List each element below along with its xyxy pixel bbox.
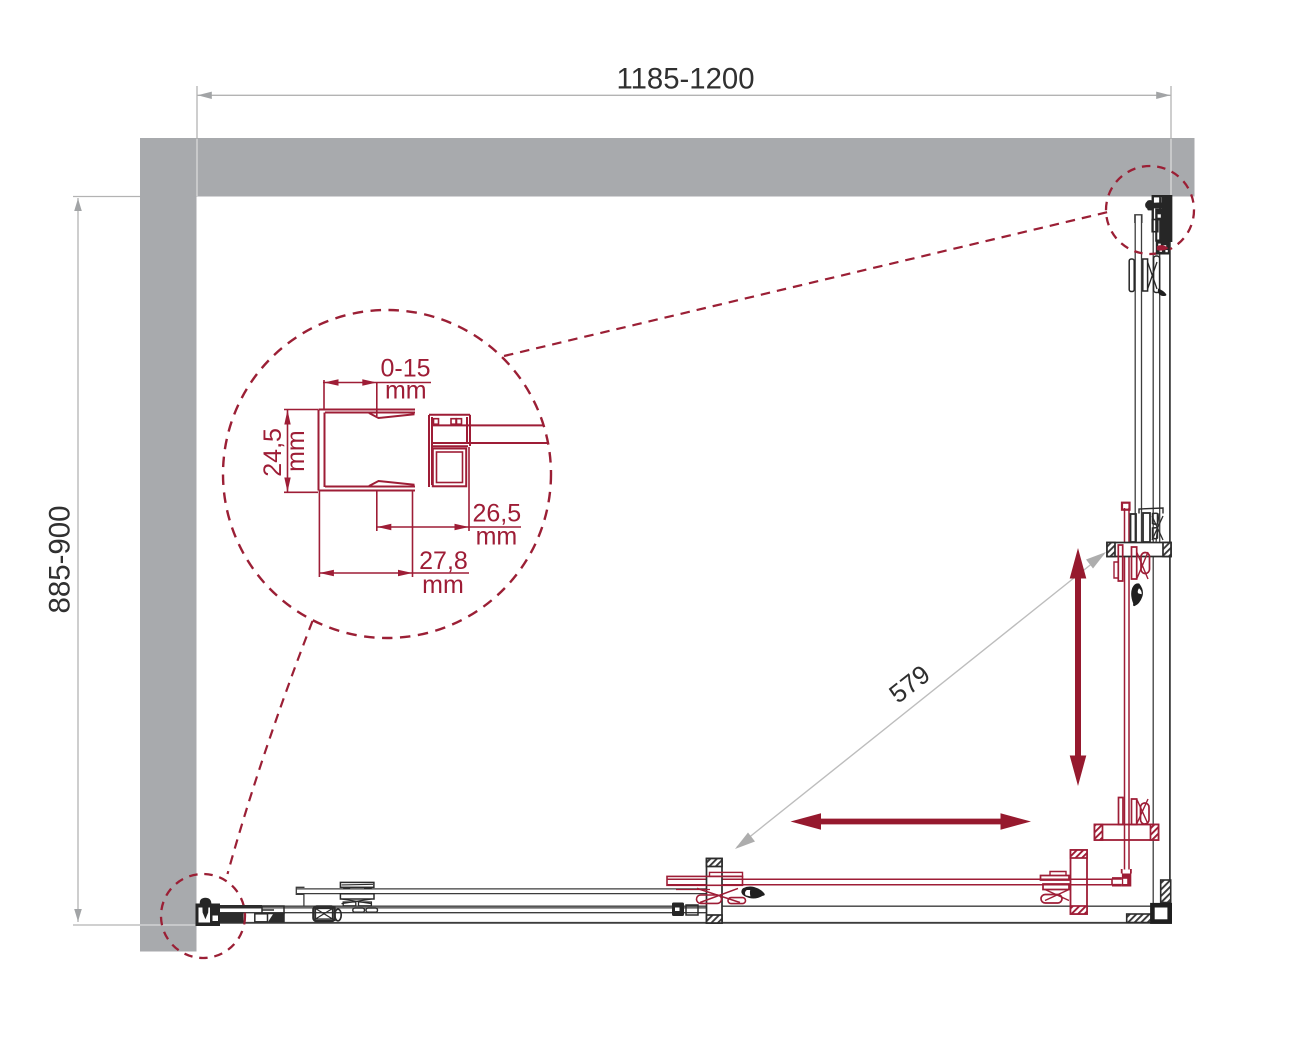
svg-text:885-900: 885-900 <box>43 506 76 614</box>
svg-text:579: 579 <box>883 659 935 709</box>
svg-text:mm: mm <box>422 571 464 599</box>
svg-text:1185-1200: 1185-1200 <box>617 63 755 96</box>
svg-text:mm: mm <box>476 523 518 551</box>
svg-text:mm: mm <box>385 377 427 405</box>
svg-text:mm: mm <box>282 430 310 472</box>
